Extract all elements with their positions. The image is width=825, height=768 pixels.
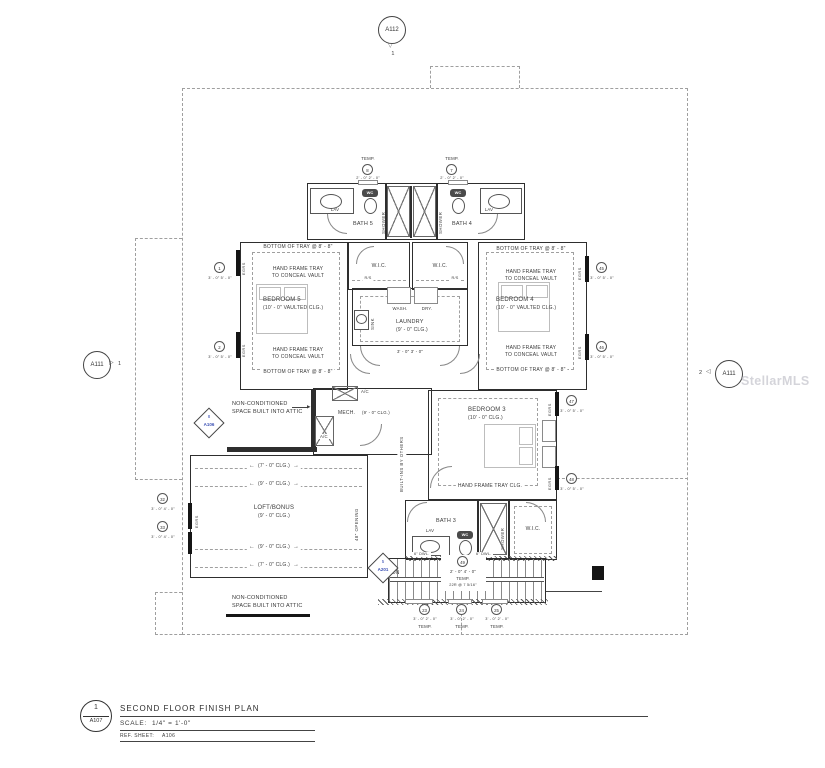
detail-marker-stair: 5 A201: [366, 551, 400, 585]
temp-glass-note: TEMP.: [418, 624, 432, 629]
tray-note: HAND FRAME TRAY CLG.: [456, 483, 524, 489]
dryer-label: DRY.: [422, 306, 432, 311]
room-label-wic: W.I.C.: [526, 526, 541, 532]
ceiling-note: (9' - 0" CLG.): [362, 410, 390, 415]
room-label-mech: MECH.: [338, 410, 355, 416]
attic-note: SPACE BUILT INTO ATTIC: [232, 603, 303, 610]
balloon-number: 1: [118, 361, 121, 368]
ceiling-note: (10' - 0" CLG.): [468, 415, 503, 421]
window-tag: 45: [596, 262, 607, 273]
egress-window: [555, 466, 559, 490]
tray-note: TO CONCEAL VAULT: [505, 352, 557, 358]
closet-box: [542, 420, 556, 442]
window-size: 2' - 0" 4' - 0": [450, 569, 476, 574]
room-label-laundry: LAUNDRY: [396, 319, 424, 326]
ceiling-note: (9' - 0" CLG.): [396, 327, 428, 333]
detail-sheet: A201: [366, 568, 400, 573]
bath3-partition: [477, 501, 479, 558]
egress-window: [236, 332, 240, 358]
egress-window: [555, 392, 559, 416]
window: [405, 599, 433, 604]
window-tag: 48: [566, 473, 577, 484]
section-balloon-a111-left: A111: [83, 351, 111, 379]
toilet-tank-icon: WC: [457, 531, 473, 539]
egress-label: EGRS: [242, 335, 247, 357]
pillow-icon: [519, 427, 533, 445]
tray-note: HAND FRAME TRAY: [506, 345, 556, 351]
room-label-bedroom5: BEDROOM 5: [263, 297, 301, 305]
egress-label: EGRS: [578, 337, 583, 359]
temp-glass-note: TEMP.: [455, 624, 469, 629]
detail-number: 5: [366, 560, 400, 565]
window-tag: 24: [456, 604, 467, 615]
leader-arrow-icon: ▶: [307, 404, 311, 409]
window-size: 3' - 0" 5' - 0": [208, 355, 231, 360]
wc-label: WC: [455, 190, 462, 195]
window-size: 3' - 0" 2' - 0": [413, 617, 436, 622]
balloon-sheet-label: A112: [385, 27, 399, 33]
shower-label: SHOWER: [500, 512, 505, 550]
bubble-divider: [83, 716, 109, 717]
window-size: 3' - 0" 4' - 0": [151, 535, 174, 540]
toilet-icon: [459, 540, 472, 556]
washer-icon: [387, 287, 411, 304]
window-tag: 33: [157, 521, 168, 532]
shower-divider-wall: [410, 186, 412, 238]
egress-label: EGRS: [548, 468, 553, 490]
toilet-tank-icon: WC: [362, 189, 378, 197]
door-dimension: 3' - 0" 3' - 0": [397, 349, 423, 354]
detail-number: 8: [192, 415, 226, 420]
egress-window: [188, 503, 192, 529]
balloon-sheet-label: A111: [722, 371, 735, 377]
tray-note: BOTTOM OF TRAY @ 8' - 8": [261, 244, 334, 250]
window-tag: 32: [157, 493, 168, 504]
closet-rod-dashed: [352, 280, 406, 281]
shower-icon: [387, 186, 410, 237]
window-size: 2' - 0" 2' - 0": [356, 176, 379, 181]
ceiling-note: (10' - 0" VAULTED CLG.): [496, 305, 556, 311]
leader-line: [292, 407, 308, 408]
window-tag: 25: [491, 604, 502, 615]
window: [448, 180, 468, 185]
window-size: 3' - 0" 5' - 0": [560, 487, 583, 492]
stair-riser-note: 22R @ 7 5/16": [449, 583, 476, 588]
balloon-pointer-icon: ▽: [388, 42, 393, 49]
room-label-loft: LOFT/BONUS: [254, 505, 294, 513]
floor-plan-canvas: WC WC SHOWER SHOWER BATH 5 BATH 4 LAV LA…: [0, 0, 825, 768]
tray-note: HAND FRAME TRAY: [506, 269, 556, 275]
egress-window: [236, 250, 240, 276]
ceiling-note: (10' - 0" VAULTED CLG.): [263, 305, 323, 311]
tray-note: TO CONCEAL VAULT: [272, 273, 324, 279]
wall-line: [546, 591, 602, 592]
toilet-icon: [364, 198, 377, 214]
shower-label: SHOWER: [438, 196, 443, 234]
ac-unit-icon: [332, 386, 358, 401]
temp-glass-note: TEMP.: [361, 156, 375, 161]
wc-label: WC: [367, 190, 374, 195]
window-size: 2' - 0" 2' - 0": [440, 176, 463, 181]
window-tag: 49: [457, 556, 468, 567]
balloon-pointer-icon: ◁: [706, 368, 711, 375]
shower-icon: [413, 186, 436, 237]
window-tag: 2: [214, 341, 225, 352]
scale-underline: [120, 730, 315, 731]
window-tag: 47: [566, 395, 577, 406]
ceiling-slope-note: (7' - 0" CLG.): [247, 463, 301, 471]
pony-wall-note: 6" DWL.: [412, 552, 431, 557]
ceiling-slope-note: (7' - 0" CLG.): [247, 562, 301, 570]
washer-label: WASH.: [393, 306, 408, 311]
ceiling-slope-note: (9' - 0" CLG.): [247, 481, 301, 489]
window-size: 3' - 0" 5' - 0": [208, 276, 231, 281]
tray-note: HAND FRAME TRAY: [273, 266, 323, 272]
attic-note: NON-CONDITIONED: [232, 595, 288, 602]
lav-label: LAV: [331, 207, 339, 212]
balloon-sheet-label: A111: [90, 362, 103, 368]
ceiling-slope-note: (9' - 0" CLG.): [247, 544, 301, 552]
egress-window: [585, 334, 589, 360]
window-size: 3' - 0" 5' - 0": [560, 409, 583, 414]
scale-value: 1/4" = 1'-0": [152, 720, 191, 728]
title-underline: [120, 716, 648, 717]
toilet-tank-icon: WC: [450, 189, 466, 197]
ac-label: A/C: [318, 434, 330, 439]
temp-glass-note: TEMP.: [456, 576, 470, 581]
ref-sheet-value: A106: [162, 733, 175, 739]
room-label-bath3: BATH 3: [436, 518, 456, 525]
attic-note: NON-CONDITIONED: [232, 401, 288, 408]
detail-sheet: A106: [192, 423, 226, 428]
ref-sheet-label: REF. SHEET:: [120, 733, 154, 739]
balloon-pointer-icon: ▷: [109, 359, 114, 366]
attic-note: SPACE BUILT INTO ATTIC: [232, 409, 303, 416]
lav-label: LAV: [426, 528, 434, 533]
egress-window: [585, 256, 589, 282]
window-size: 3' - 0" 5' - 0": [590, 276, 613, 281]
shower-label: SHOWER: [381, 196, 386, 234]
rod-shelf-label: R/S: [450, 276, 461, 281]
sink-icon: [356, 314, 367, 324]
wc-label: WC: [462, 532, 469, 537]
window-tag: 46: [596, 341, 607, 352]
scale-label: SCALE:: [120, 720, 147, 728]
lav-label: LAV: [485, 207, 493, 212]
window-size: 3' - 0" 2' - 0": [485, 617, 508, 622]
balloon-number: 1: [391, 51, 394, 58]
window-tag: 8: [362, 164, 373, 175]
section-balloon-a111-right: A111: [715, 360, 743, 388]
window: [358, 180, 378, 185]
roof-notch-left-dashed: [135, 238, 182, 480]
egress-label: EGRS: [195, 506, 200, 528]
window-size: 3' - 0" 2' - 0": [450, 617, 473, 622]
watermark: StellarMLS: [741, 374, 810, 388]
tray-note: BOTTOM OF TRAY @ 8' - 8": [494, 367, 567, 373]
closet-box: [542, 446, 556, 468]
bath3-partition: [508, 501, 510, 558]
tray-note: TO CONCEAL VAULT: [272, 354, 324, 360]
window-size: 3' - 0" 5' - 0": [590, 355, 613, 360]
room-label-bedroom4: BEDROOM 4: [496, 297, 534, 305]
window-tag: 1: [214, 262, 225, 273]
tray-note: BOTTOM OF TRAY @ 8' - 8": [494, 246, 567, 252]
egress-label: EGRS: [242, 253, 247, 275]
ref-underline: [120, 741, 315, 742]
temp-glass-note: TEMP.: [445, 156, 459, 161]
ceiling-note: (9' - 0" CLG.): [258, 513, 290, 519]
wall-end-cap: [592, 566, 604, 580]
tray-note: BOTTOM OF TRAY @ 8' - 8": [261, 369, 334, 375]
toilet-icon: [452, 198, 465, 214]
sink-label: SINK: [370, 312, 375, 330]
room-label-bath5: BATH 5: [353, 221, 373, 228]
temp-glass-note: TEMP.: [490, 624, 504, 629]
ac-unit-icon: [315, 416, 334, 446]
room-label-bath4: BATH 4: [452, 221, 472, 228]
rod-shelf-label: R/S: [363, 276, 374, 281]
roof-notch-top-dashed: [430, 66, 520, 88]
detail-marker-mech: 8 A106: [192, 406, 226, 440]
egress-label: EGRS: [578, 258, 583, 280]
window-tag: 7: [446, 164, 457, 175]
built-ins-note: BUILT-INS BY OTHERS: [397, 426, 406, 492]
dryer-icon: [414, 287, 438, 304]
section-balloon-a112: A112: [378, 16, 406, 44]
window-tag: 23: [419, 604, 430, 615]
tray-note: HAND FRAME TRAY: [273, 347, 323, 353]
egress-label: EGRS: [548, 394, 553, 416]
drawing-title: SECOND FLOOR FINISH PLAN: [120, 704, 260, 714]
balloon-number: 2: [699, 370, 702, 377]
roof-notch-bottomleft-dashed: [155, 592, 182, 635]
room-label-bedroom3: BEDROOM 3: [468, 407, 506, 415]
wall-line-heavy: [226, 614, 310, 617]
opening-note: 48" OPENING: [352, 495, 361, 541]
attic-partition-wall: [227, 447, 317, 452]
detail-title-bubble: 1 A107: [80, 700, 112, 732]
pillow-icon: [519, 447, 533, 465]
detail-title-number: 1: [81, 704, 111, 711]
window-size: 3' - 0" 4' - 0": [151, 507, 174, 512]
detail-title-sheet: A107: [81, 718, 111, 724]
egress-window: [188, 532, 192, 554]
ac-label: A/C: [361, 389, 369, 394]
